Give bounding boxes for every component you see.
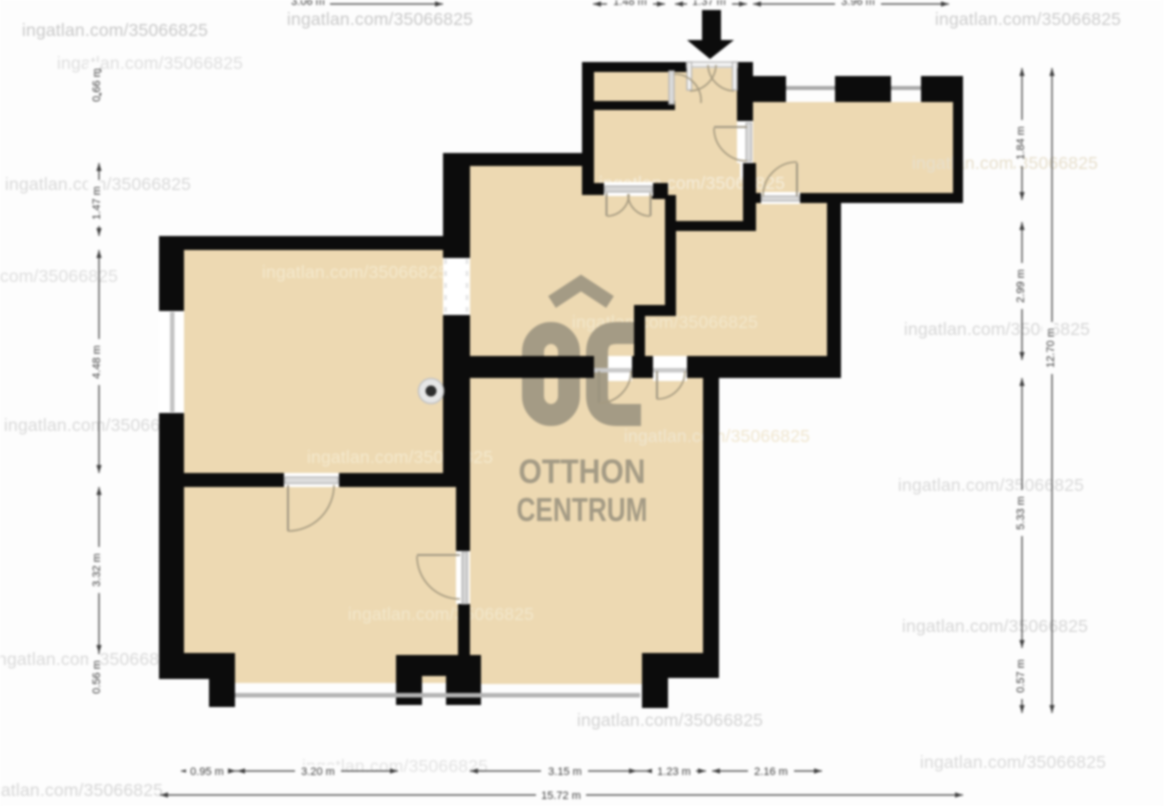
svg-text:ingatlan.com/35066825: ingatlan.com/35066825 (935, 9, 1121, 29)
svg-text:15.72 m: 15.72 m (541, 790, 581, 802)
svg-text:3.15 m: 3.15 m (548, 766, 582, 778)
svg-text:3.06 m: 3.06 m (291, 0, 325, 8)
svg-text:ingatlan.com/35066825: ingatlan.com/35066825 (904, 319, 1090, 339)
svg-text:4.48 m: 4.48 m (91, 345, 103, 379)
svg-text:ingatlan.com/35066825: ingatlan.com/35066825 (898, 475, 1084, 495)
svg-text:2.99 m: 2.99 m (1015, 269, 1027, 303)
svg-text:ingatlan.com/35066825: ingatlan.com/35066825 (22, 20, 208, 40)
svg-text:ingatlan.com/35066825: ingatlan.com/35066825 (0, 266, 118, 286)
svg-text:1.84 m: 1.84 m (1015, 126, 1027, 160)
svg-text:ingatlan.com/35066825: ingatlan.com/35066825 (287, 9, 473, 29)
svg-text:OTTHON: OTTHON (519, 453, 646, 491)
svg-text:0.66 m: 0.66 m (91, 68, 103, 102)
svg-text:2.16 m: 2.16 m (754, 766, 788, 778)
svg-text:0.56 m: 0.56 m (91, 660, 103, 694)
svg-text:CENTRUM: CENTRUM (517, 491, 648, 528)
svg-text:ingatlan.com/35066825: ingatlan.com/35066825 (0, 780, 163, 800)
svg-text:0.57 m: 0.57 m (1015, 659, 1027, 693)
svg-text:1.47 m: 1.47 m (91, 186, 103, 220)
svg-text:1.23 m: 1.23 m (657, 766, 691, 778)
svg-text:ingatlan.com/35066825: ingatlan.com/35066825 (262, 262, 448, 282)
svg-text:1.37 m: 1.37 m (692, 0, 726, 8)
svg-text:ingatlan.com/35066825: ingatlan.com/35066825 (920, 752, 1106, 772)
svg-text:ingatlan.com/35066825: ingatlan.com/35066825 (348, 604, 534, 624)
svg-text:ingatlan.com/35066825: ingatlan.com/35066825 (912, 153, 1098, 173)
svg-text:3.20 m: 3.20 m (301, 766, 335, 778)
svg-text:ingatlan.com/35066825: ingatlan.com/35066825 (902, 616, 1088, 636)
svg-text:0.95 m: 0.95 m (190, 766, 224, 778)
svg-text:1.48 m: 1.48 m (613, 0, 647, 8)
svg-text:5.33 m: 5.33 m (1015, 496, 1027, 530)
svg-text:12.70 m: 12.70 m (1045, 328, 1057, 368)
svg-text:ingatlan.com/35066825: ingatlan.com/35066825 (577, 710, 763, 730)
svg-text:3.96 m: 3.96 m (841, 0, 875, 8)
svg-text:ingatlan.com/35066825: ingatlan.com/35066825 (57, 53, 243, 73)
svg-text:3.32 m: 3.32 m (91, 553, 103, 587)
